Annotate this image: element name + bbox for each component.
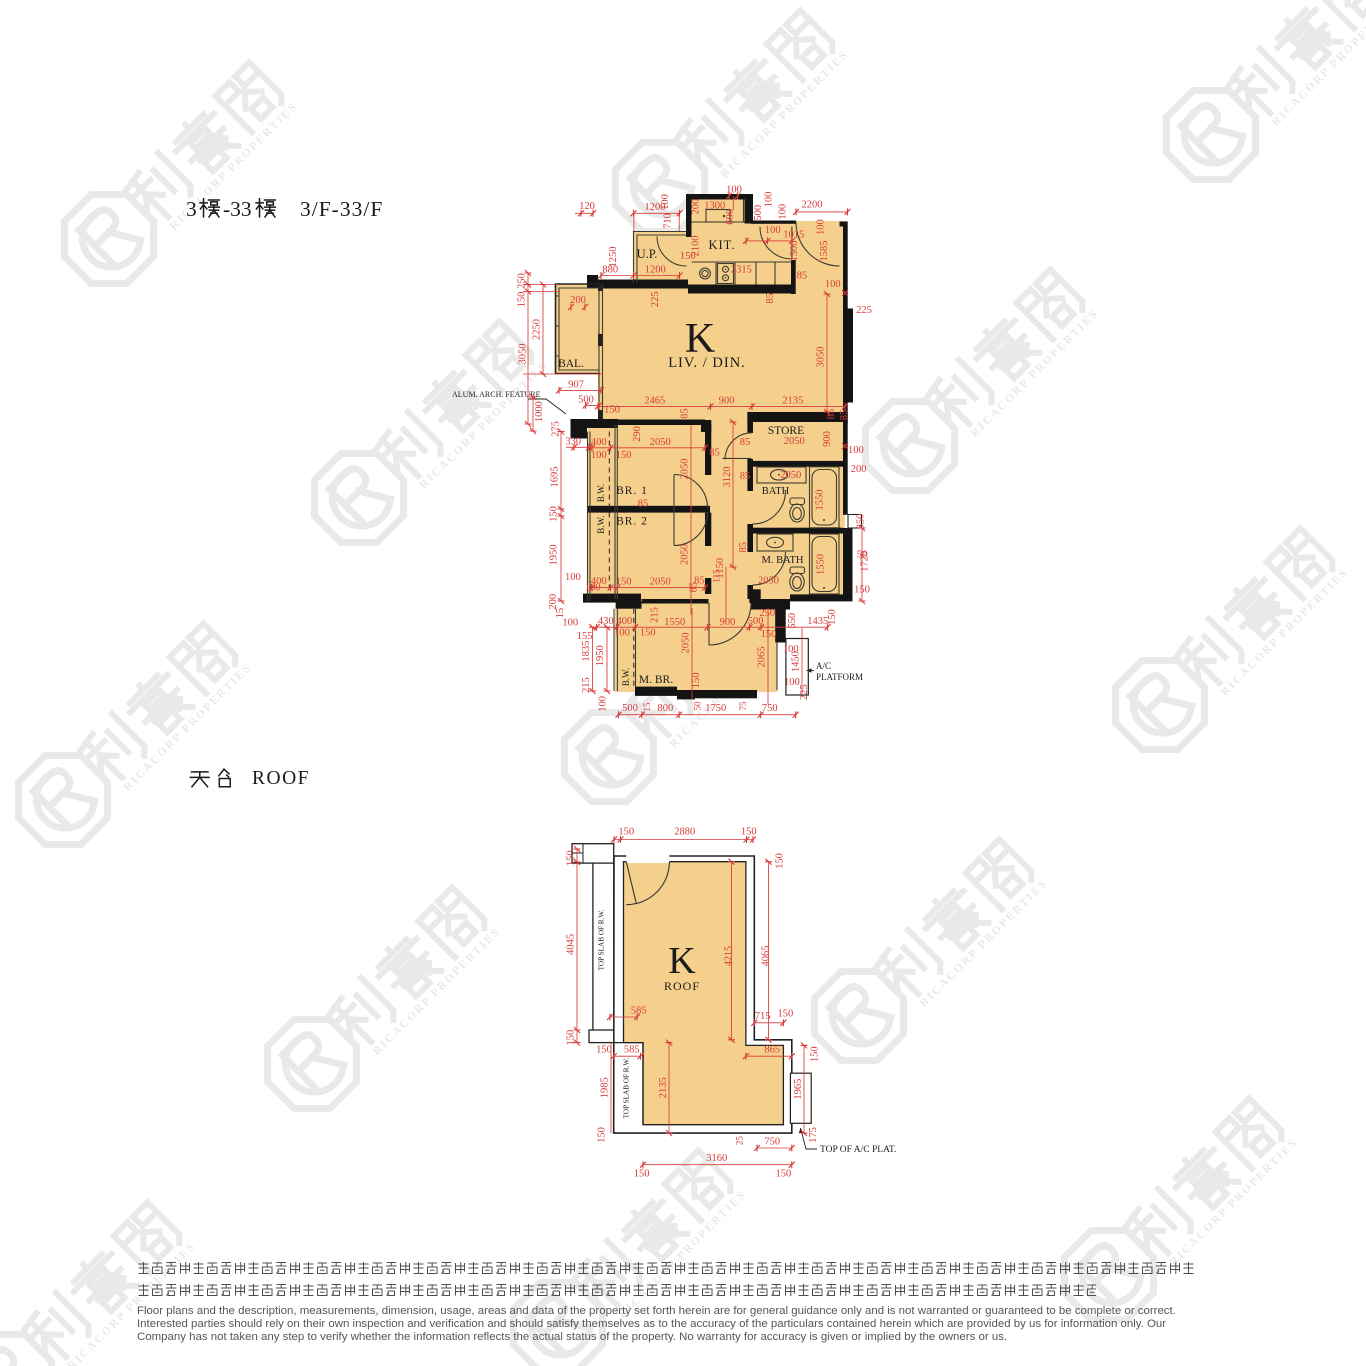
svg-text:3050: 3050 (816, 347, 827, 368)
svg-text:150: 150 (597, 1127, 608, 1143)
svg-text:85: 85 (740, 471, 751, 482)
svg-text:1450: 1450 (791, 651, 802, 672)
svg-text:120: 120 (579, 201, 595, 212)
svg-text:85: 85 (709, 447, 720, 458)
svg-text:K: K (668, 940, 696, 982)
svg-text:150: 150 (616, 450, 632, 461)
svg-text:115: 115 (712, 569, 722, 583)
svg-text:2050: 2050 (780, 470, 801, 481)
svg-text:15: 15 (642, 702, 652, 712)
svg-text:900: 900 (720, 617, 736, 628)
svg-text:85: 85 (797, 271, 808, 282)
svg-text:4215: 4215 (724, 946, 735, 966)
svg-text:ROOF: ROOF (252, 768, 310, 789)
svg-text:150: 150 (775, 853, 786, 869)
svg-text:75: 75 (738, 701, 748, 711)
svg-text:2135: 2135 (658, 1077, 669, 1098)
svg-text:1720: 1720 (860, 551, 871, 572)
svg-text:150: 150 (776, 1168, 792, 1179)
svg-text:150: 150 (596, 1045, 612, 1056)
svg-text:3050: 3050 (518, 344, 529, 365)
svg-text:500: 500 (622, 703, 638, 714)
svg-text:150: 150 (604, 405, 620, 416)
svg-text:BATH: BATH (762, 486, 790, 497)
svg-text:225: 225 (856, 305, 872, 316)
svg-text:150: 150 (741, 827, 757, 838)
svg-text:1950: 1950 (549, 545, 560, 566)
svg-text:200: 200 (851, 464, 867, 475)
svg-text:250: 250 (759, 608, 775, 619)
svg-text:1695: 1695 (550, 467, 561, 488)
svg-text:1435: 1435 (807, 616, 828, 627)
svg-text:3/F-33/F: 3/F-33/F (300, 197, 383, 221)
svg-text:100: 100 (660, 194, 671, 210)
svg-text:175: 175 (808, 1127, 819, 1143)
svg-text:585: 585 (624, 1045, 640, 1056)
svg-text:ROOF: ROOF (664, 979, 700, 993)
svg-text:585: 585 (631, 1006, 647, 1017)
svg-text:150: 150 (549, 506, 560, 522)
svg-text:100: 100 (764, 192, 775, 208)
svg-text:100: 100 (585, 582, 601, 593)
svg-text:100: 100 (565, 572, 581, 583)
svg-text:215: 215 (650, 607, 661, 623)
svg-text:2200: 2200 (802, 200, 823, 211)
svg-text:865: 865 (764, 1045, 780, 1056)
svg-text:PLATFORM: PLATFORM (816, 672, 863, 682)
svg-text:225: 225 (799, 684, 810, 700)
svg-text:2880: 2880 (674, 827, 695, 838)
svg-text:2050: 2050 (784, 436, 805, 447)
svg-text:715: 715 (755, 1011, 771, 1022)
svg-text:100: 100 (778, 204, 789, 220)
svg-text:215: 215 (581, 677, 592, 693)
svg-text:290: 290 (632, 426, 643, 442)
svg-text:M. BR.: M. BR. (639, 674, 673, 686)
svg-text:155: 155 (577, 631, 593, 642)
svg-text:85: 85 (839, 410, 850, 421)
svg-text:4045: 4045 (566, 934, 577, 955)
svg-text:150: 150 (854, 585, 870, 596)
svg-text:1965: 1965 (793, 1079, 804, 1100)
svg-text:1300: 1300 (704, 201, 725, 212)
svg-text:2050: 2050 (681, 633, 692, 654)
svg-text:2050: 2050 (650, 576, 671, 587)
svg-text:1835: 1835 (581, 641, 592, 662)
svg-text:2250: 2250 (532, 319, 543, 340)
svg-text:ALUM. ARCH. FEATURE: ALUM. ARCH. FEATURE (452, 390, 541, 399)
svg-text:2050: 2050 (650, 437, 671, 448)
svg-text:1000: 1000 (534, 401, 545, 422)
svg-text:2135: 2135 (782, 395, 803, 406)
svg-text:275: 275 (550, 421, 561, 437)
svg-text:1750: 1750 (705, 703, 726, 714)
svg-text:500: 500 (578, 395, 594, 406)
svg-text:3120: 3120 (722, 467, 733, 488)
svg-text:750: 750 (762, 703, 778, 714)
svg-text:2050: 2050 (758, 575, 779, 586)
svg-text:2050: 2050 (680, 459, 691, 480)
svg-text:100: 100 (825, 279, 841, 290)
svg-text:85: 85 (826, 409, 837, 420)
svg-text:1585: 1585 (819, 241, 830, 262)
svg-text:1550: 1550 (814, 490, 825, 511)
svg-text:B.W.: B.W. (596, 484, 606, 502)
svg-text:B.W.: B.W. (596, 516, 606, 534)
svg-text:85: 85 (765, 293, 776, 304)
svg-text:3160: 3160 (706, 1153, 727, 1164)
svg-text:100: 100 (765, 225, 781, 236)
svg-text:100: 100 (815, 219, 826, 235)
svg-text:3: 3 (186, 197, 197, 221)
svg-text:-33: -33 (223, 197, 252, 221)
svg-text:KIT.: KIT. (708, 238, 735, 252)
svg-text:BR. 1: BR. 1 (616, 485, 648, 497)
svg-text:B.W.: B.W. (621, 668, 631, 686)
svg-text:TOP OF A/C PLAT.: TOP OF A/C PLAT. (820, 1145, 896, 1155)
svg-text:1250: 1250 (608, 247, 619, 268)
svg-text:85: 85 (679, 408, 690, 419)
svg-text:2050: 2050 (680, 544, 691, 565)
svg-text:200: 200 (548, 594, 559, 610)
svg-text:85: 85 (688, 582, 699, 593)
svg-text:100: 100 (562, 618, 578, 629)
svg-text:150: 150 (827, 609, 838, 625)
svg-text:150: 150 (691, 673, 702, 689)
svg-text:800: 800 (658, 703, 674, 714)
svg-text:225: 225 (650, 291, 661, 307)
svg-text:150: 150 (616, 576, 632, 587)
svg-text:100: 100 (848, 445, 864, 456)
svg-text:100: 100 (591, 450, 607, 461)
svg-text:550: 550 (787, 613, 798, 629)
svg-text:330: 330 (565, 436, 581, 447)
svg-text:1985: 1985 (599, 1077, 610, 1098)
svg-text:150: 150 (566, 1030, 577, 1046)
svg-text:100: 100 (598, 696, 609, 712)
svg-text:900: 900 (719, 395, 735, 406)
svg-text:150: 150 (761, 629, 777, 640)
svg-text:1550: 1550 (664, 617, 685, 628)
svg-text:710: 710 (663, 213, 674, 229)
svg-text:150: 150 (517, 292, 528, 308)
svg-text:1550: 1550 (816, 554, 827, 575)
svg-text:85: 85 (740, 437, 751, 448)
svg-text:750: 750 (764, 1136, 780, 1147)
svg-text:50: 50 (693, 701, 703, 711)
svg-text:85: 85 (738, 542, 749, 553)
svg-text:1015: 1015 (783, 230, 804, 241)
svg-text:200: 200 (570, 295, 586, 306)
svg-text:BR. 2: BR. 2 (616, 516, 648, 528)
svg-text:2315: 2315 (731, 265, 752, 276)
svg-text:150: 150 (566, 850, 577, 866)
svg-text:200: 200 (690, 199, 701, 215)
svg-text:150: 150 (634, 1168, 650, 1179)
svg-text:Interested parties should rely: Interested parties should rely on their … (137, 1318, 1166, 1330)
svg-text:85: 85 (638, 499, 649, 510)
svg-text:1950: 1950 (595, 645, 606, 666)
svg-text:150: 150 (618, 827, 634, 838)
svg-text:LIV. / DIN.: LIV. / DIN. (668, 355, 746, 371)
svg-text:100: 100 (614, 628, 630, 639)
svg-text:907: 907 (568, 380, 584, 391)
svg-text:BAL.: BAL. (558, 358, 584, 370)
svg-text:A/C: A/C (816, 661, 831, 671)
svg-text:2465: 2465 (644, 395, 665, 406)
svg-text:400: 400 (617, 616, 633, 627)
svg-text:1500: 1500 (789, 241, 800, 262)
svg-text:250: 250 (517, 273, 528, 289)
svg-text:900: 900 (822, 431, 833, 447)
svg-text:600: 600 (725, 209, 736, 225)
svg-text:2100: 2100 (690, 236, 701, 257)
svg-text:Company has not taken any step: Company has not taken any step to verify… (137, 1331, 1007, 1343)
svg-text:150: 150 (778, 1008, 794, 1019)
svg-text:400: 400 (591, 437, 607, 448)
svg-text:U.P.: U.P. (637, 247, 658, 261)
svg-text:25: 25 (734, 1136, 744, 1146)
svg-text:M. BATH: M. BATH (761, 555, 803, 566)
svg-text:2065: 2065 (757, 647, 768, 668)
svg-text:100: 100 (784, 677, 800, 688)
svg-text:150: 150 (640, 628, 656, 639)
svg-text:500: 500 (753, 205, 764, 221)
svg-text:TOP SLAB OF R.W.: TOP SLAB OF R.W. (598, 909, 606, 970)
svg-text:TOP SLAB OF R.W.: TOP SLAB OF R.W. (623, 1057, 631, 1118)
svg-text:1200: 1200 (645, 265, 666, 276)
svg-text:4065: 4065 (761, 946, 772, 967)
svg-text:150: 150 (809, 1046, 820, 1062)
svg-text:Floor plans and the descriptio: Floor plans and the description, measure… (137, 1305, 1176, 1317)
